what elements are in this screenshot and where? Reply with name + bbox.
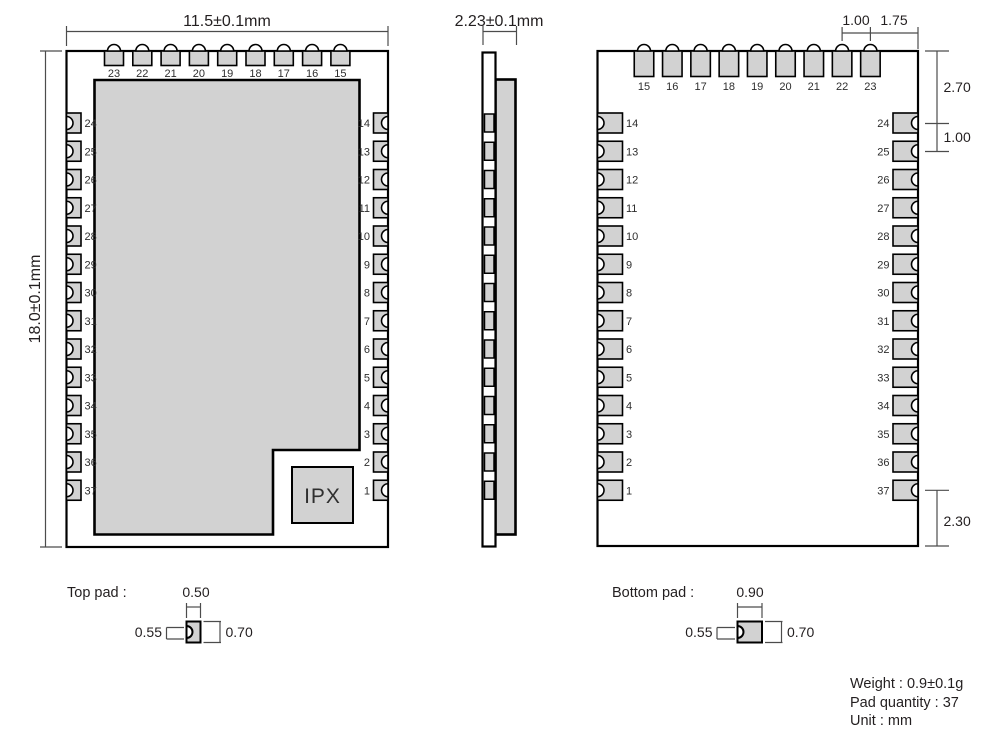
side-pad: [485, 481, 495, 499]
pad-body: [747, 51, 767, 77]
pad-notch: [751, 45, 764, 51]
pad-notch: [598, 314, 605, 327]
pad-notch: [67, 343, 74, 356]
pad-pin-28: 28: [67, 226, 97, 246]
module-dimension-drawing: 11.5±0.1mm 18.0±0.1mm IPX 23222120191817…: [0, 0, 1000, 738]
pad-number: 1: [364, 485, 370, 497]
pad-notch: [382, 399, 388, 412]
pad-notch: [164, 45, 177, 51]
pad-notch: [67, 456, 74, 469]
pad-number: 13: [626, 146, 638, 158]
pad-notch: [598, 173, 605, 186]
pad-pin-10: 10: [358, 226, 388, 246]
pad-pin-1: 1: [364, 480, 388, 500]
pad-number: 37: [85, 485, 97, 497]
pad-number: 1: [626, 485, 632, 497]
pad-notch: [334, 45, 347, 51]
pad-pin-22: 22: [133, 45, 152, 80]
top-pad-detail: Top pad : 0.50 0.55 0.70: [67, 584, 253, 643]
pad-body: [303, 51, 322, 66]
pad-pin-2: 2: [598, 452, 633, 472]
pad-pin-16: 16: [303, 45, 322, 80]
bottom-view-top-dimensions: 1.00 1.75: [842, 12, 918, 49]
pad-notch: [912, 484, 919, 497]
pad-notch: [382, 286, 388, 299]
pad-notch: [67, 145, 74, 158]
bottom-pad-width-label: 0.90: [736, 584, 763, 600]
pad-number: 9: [626, 259, 632, 271]
pad-number: 35: [877, 429, 889, 441]
pad-notch: [108, 45, 121, 51]
mechanical-drawing-page: 11.5±0.1mm 18.0±0.1mm IPX 23222120191817…: [0, 0, 1000, 738]
side-pad: [485, 227, 495, 245]
pad-number: 36: [85, 457, 97, 469]
pad-number: 16: [666, 81, 678, 93]
pad-number: 37: [877, 485, 889, 497]
pad-notch: [67, 371, 74, 384]
top-pad-notch: [187, 626, 193, 638]
pad-number: 28: [877, 231, 889, 243]
pad-number: 12: [358, 175, 370, 187]
pad-number: 10: [626, 231, 638, 243]
pad-pin-28: 28: [877, 226, 918, 246]
top-pin-pitch-label: 1.00: [842, 12, 869, 28]
bottom-view-right-lower-dimension: 2.30: [925, 490, 971, 546]
pad-notch: [67, 427, 74, 440]
pad-number: 34: [85, 401, 97, 413]
pad-pin-8: 8: [598, 283, 633, 303]
pad-notch: [306, 45, 319, 51]
pad-pin-18: 18: [246, 45, 265, 80]
pad-pin-35: 35: [67, 424, 97, 444]
top-view-width-dimension: 11.5±0.1mm: [67, 13, 389, 46]
pad-body: [274, 51, 293, 66]
pad-pin-36: 36: [877, 452, 918, 472]
pad-notch: [864, 45, 877, 51]
pad-notch: [382, 145, 388, 158]
pad-pin-29: 29: [67, 254, 97, 274]
pad-pin-2: 2: [364, 452, 388, 472]
pad-number: 33: [85, 372, 97, 384]
pad-number: 34: [877, 401, 889, 413]
pad-body: [331, 51, 350, 66]
pad-pin-6: 6: [364, 339, 388, 359]
pad-notch: [598, 484, 605, 497]
pad-pin-14: 14: [598, 113, 639, 133]
pad-pin-24: 24: [67, 113, 97, 133]
pad-pin-34: 34: [877, 396, 918, 416]
pad-pin-20: 20: [776, 45, 796, 93]
pad-pin-37: 37: [877, 480, 918, 500]
pad-notch: [912, 258, 919, 271]
pad-notch: [382, 343, 388, 356]
pad-pin-3: 3: [598, 424, 633, 444]
pad-number: 8: [626, 288, 632, 300]
top-pad-detail-label: Top pad :: [67, 585, 127, 601]
pad-number: 3: [364, 429, 370, 441]
pad-notch: [912, 286, 919, 299]
pad-body: [189, 51, 208, 66]
pad-number: 27: [85, 203, 97, 215]
pad-pin-32: 32: [877, 339, 918, 359]
pad-number: 31: [877, 316, 889, 328]
pad-number: 22: [136, 68, 148, 80]
bottom-pad-width-dimension: 0.90: [736, 584, 763, 618]
pad-number: 11: [626, 203, 637, 215]
pad-notch: [277, 45, 290, 51]
side-pad: [485, 425, 495, 443]
pad-number: 32: [85, 344, 97, 356]
pad-pin-23: 23: [861, 45, 881, 93]
bottom-pad-detail-label: Bottom pad :: [612, 585, 694, 601]
bottom-view: 1516171819202122231413121110987654321242…: [598, 12, 971, 546]
pad-pin-1: 1: [598, 480, 633, 500]
pad-pin-17: 17: [691, 45, 711, 93]
pad-notch: [598, 258, 605, 271]
side-pad: [485, 340, 495, 358]
pad-pin-27: 27: [877, 198, 918, 218]
pad-number: 29: [877, 259, 889, 271]
side-view: 2.23±0.1mm: [455, 13, 544, 547]
pad-notch: [598, 201, 605, 214]
pad-notch: [912, 201, 919, 214]
pad-notch: [598, 230, 605, 243]
pad-pin-9: 9: [364, 254, 388, 274]
pad-pin-7: 7: [598, 311, 633, 331]
pad-number: 19: [221, 68, 233, 80]
pad-notch: [598, 343, 605, 356]
bottom-pad-right-height-label: 0.70: [787, 624, 814, 640]
pad-number: 2: [364, 457, 370, 469]
pad-pin-4: 4: [364, 396, 388, 416]
top-pad-width-dimension: 0.50: [182, 584, 209, 618]
pad-notch: [666, 45, 679, 51]
pad-notch: [598, 145, 605, 158]
pad-number: 5: [364, 372, 370, 384]
pad-number: 5: [626, 372, 632, 384]
pad-pin-13: 13: [598, 141, 639, 161]
pad-number: 25: [85, 146, 97, 158]
pad-body: [218, 51, 237, 66]
pad-number: 17: [694, 81, 706, 93]
pad-number: 6: [626, 344, 632, 356]
top-view: 11.5±0.1mm 18.0±0.1mm IPX 23222120191817…: [27, 13, 388, 547]
pad-pin-19: 19: [747, 45, 767, 93]
bottom-view-pads: 1516171819202122231413121110987654321242…: [598, 45, 919, 501]
pad-notch: [598, 427, 605, 440]
pad-number: 33: [877, 372, 889, 384]
pad-pin-3: 3: [364, 424, 388, 444]
pad-number: 26: [877, 175, 889, 187]
pad-notch: [598, 286, 605, 299]
pad-number: 11: [359, 203, 370, 215]
top-pad-right-height-label: 0.70: [226, 624, 253, 640]
pad-pin-24: 24: [877, 113, 918, 133]
pad-notch: [136, 45, 149, 51]
bottom-pad-right-height-dimension: 0.70: [765, 622, 814, 643]
pad-pin-37: 37: [67, 480, 97, 500]
pad-number: 6: [364, 344, 370, 356]
pad-number: 15: [334, 68, 346, 80]
pad-body: [719, 51, 739, 77]
pad-pin-16: 16: [663, 45, 683, 93]
pad-notch: [67, 399, 74, 412]
pad-notch: [598, 399, 605, 412]
pad-number: 2: [626, 457, 632, 469]
side-view-width-label: 2.23±0.1mm: [455, 13, 544, 30]
pad-pin-6: 6: [598, 339, 633, 359]
pad-notch: [912, 314, 919, 327]
pad-pin-30: 30: [877, 283, 918, 303]
pad-number: 23: [864, 81, 876, 93]
pad-body: [246, 51, 265, 66]
pad-pin-34: 34: [67, 396, 97, 416]
pad-body: [804, 51, 824, 77]
pad-body: [133, 51, 152, 66]
pad-number: 4: [364, 401, 370, 413]
pad-number: 23: [108, 68, 120, 80]
top-pad-left-height-label: 0.55: [135, 624, 162, 640]
pad-number: 24: [877, 118, 889, 130]
pad-pin-19: 19: [218, 45, 237, 80]
bottom-view-module-outline: [598, 51, 919, 546]
pad-number: 7: [364, 316, 370, 328]
pad-body: [105, 51, 124, 66]
weight-text: Weight : 0.9±0.1g: [850, 676, 963, 692]
pad-pin-17: 17: [274, 45, 293, 80]
pad-number: 4: [626, 401, 632, 413]
pad-notch: [67, 286, 74, 299]
pad-pin-33: 33: [877, 367, 918, 387]
side-pad: [485, 114, 495, 132]
pad-pin-29: 29: [877, 254, 918, 274]
pad-pin-27: 27: [67, 198, 97, 218]
pad-number: 22: [836, 81, 848, 93]
pad-notch: [598, 371, 605, 384]
pad-number: 18: [723, 81, 735, 93]
bottom-pad-left-height-label: 0.55: [685, 624, 712, 640]
pad-number: 17: [278, 68, 290, 80]
top-pad-width-label: 0.50: [182, 584, 209, 600]
pad-notch: [694, 45, 707, 51]
pad-pin-21: 21: [161, 45, 180, 80]
side-pad: [485, 453, 495, 471]
pad-number: 27: [877, 203, 889, 215]
ipx-label: IPX: [304, 485, 341, 508]
side-pad: [485, 199, 495, 217]
pad-number: 3: [626, 429, 632, 441]
pad-body: [663, 51, 683, 77]
pad-pin-23: 23: [105, 45, 124, 80]
pad-notch: [382, 484, 388, 497]
pad-notch: [912, 456, 919, 469]
pad-pin-33: 33: [67, 367, 97, 387]
side-pad: [485, 255, 495, 273]
pad-notch: [722, 45, 735, 51]
pad-notch: [638, 45, 651, 51]
pad-notch: [382, 314, 388, 327]
pad-body: [776, 51, 796, 77]
bottom-pad-notch: [738, 626, 744, 638]
pad-notch: [382, 456, 388, 469]
pad-pin-14: 14: [358, 113, 388, 133]
side-pad: [485, 142, 495, 160]
pad-number: 21: [164, 68, 176, 80]
side-pad: [485, 312, 495, 330]
last-pin-to-bottom-label: 2.30: [944, 513, 971, 529]
pad-notch: [192, 45, 205, 51]
top-pad-right-height-dimension: 0.70: [204, 622, 253, 643]
pad-number: 28: [85, 231, 97, 243]
pad-pin-26: 26: [877, 170, 918, 190]
pad-number: 10: [358, 231, 370, 243]
pad-notch: [912, 230, 919, 243]
pad-number: 25: [877, 146, 889, 158]
pad-body: [691, 51, 711, 77]
pad-number: 19: [751, 81, 763, 93]
pad-notch: [382, 117, 388, 130]
pad-pin-21: 21: [804, 45, 824, 93]
side-pad: [485, 284, 495, 302]
side-view-width-dimension: 2.23±0.1mm: [455, 13, 544, 45]
pad-notch: [912, 399, 919, 412]
pad-body: [634, 51, 654, 77]
pad-notch: [598, 117, 605, 130]
top-pad-left-height-dimension: 0.55: [135, 624, 184, 640]
pad-number: 32: [877, 344, 889, 356]
pad-notch: [67, 484, 74, 497]
unit-text: Unit : mm: [850, 713, 912, 729]
pad-pin-4: 4: [598, 396, 633, 416]
pad-pin-15: 15: [634, 45, 654, 93]
pad-body: [861, 51, 881, 77]
pad-notch: [912, 343, 919, 356]
pad-body: [161, 51, 180, 66]
pad-pin-11: 11: [598, 198, 638, 218]
pad-number: 13: [358, 146, 370, 158]
pad-notch: [912, 427, 919, 440]
pad-notch: [912, 117, 919, 130]
pad-number: 30: [85, 288, 97, 300]
pad-notch: [382, 201, 388, 214]
pad-notch: [249, 45, 262, 51]
pad-pin-35: 35: [877, 424, 918, 444]
pad-number: 16: [306, 68, 318, 80]
pad-number: 31: [85, 316, 97, 328]
pad-pin-11: 11: [359, 198, 388, 218]
pad-number: 29: [85, 259, 97, 271]
pad-notch: [382, 230, 388, 243]
pad-pin-8: 8: [364, 283, 388, 303]
pad-pin-10: 10: [598, 226, 639, 246]
pad-number: 20: [779, 81, 791, 93]
bottom-pad-detail: Bottom pad : 0.90 0.55 0.70: [612, 584, 814, 643]
pad-notch: [382, 427, 388, 440]
pad-notch: [67, 314, 74, 327]
pad-notch: [912, 173, 919, 186]
pad-notch: [382, 258, 388, 271]
pad-quantity-text: Pad quantity : 37: [850, 695, 959, 711]
pad-number: 9: [364, 259, 370, 271]
info-block: Weight : 0.9±0.1g Pad quantity : 37 Unit…: [850, 676, 963, 729]
pad-pin-31: 31: [877, 311, 918, 331]
top-view-width-label: 11.5±0.1mm: [183, 13, 271, 30]
pad-pin-18: 18: [719, 45, 739, 93]
pad-number: 14: [626, 118, 638, 130]
pad-pin-31: 31: [67, 311, 97, 331]
side-pin-pitch-label: 1.00: [944, 129, 971, 145]
pad-pin-13: 13: [358, 141, 388, 161]
pad-notch: [598, 456, 605, 469]
pad-number: 18: [249, 68, 261, 80]
pad-number: 21: [808, 81, 820, 93]
side-pad: [485, 397, 495, 415]
pad-notch: [67, 230, 74, 243]
pad-body: [832, 51, 852, 77]
side-pad: [485, 368, 495, 386]
pad-notch: [221, 45, 234, 51]
top-view-height-label: 18.0±0.1mm: [27, 255, 44, 344]
pad-notch: [67, 258, 74, 271]
pad-number: 8: [364, 288, 370, 300]
pad-number: 20: [193, 68, 205, 80]
pad-notch: [836, 45, 849, 51]
pad-pin-20: 20: [189, 45, 208, 80]
pad-notch: [912, 145, 919, 158]
pad-pin-32: 32: [67, 339, 97, 359]
side-view-rf-shield: [496, 80, 516, 535]
pad-pin-36: 36: [67, 452, 97, 472]
pad-number: 35: [85, 429, 97, 441]
pad-pin-7: 7: [364, 311, 388, 331]
pad-pin-5: 5: [598, 367, 633, 387]
pad-pin-26: 26: [67, 170, 97, 190]
pad-pin-25: 25: [877, 141, 918, 161]
pad-number: 14: [358, 118, 370, 130]
pad-number: 26: [85, 175, 97, 187]
pad-pin-5: 5: [364, 367, 388, 387]
pad-pin-15: 15: [331, 45, 350, 80]
pad-number: 7: [626, 316, 632, 328]
side-pad: [485, 171, 495, 189]
pad-notch: [67, 173, 74, 186]
pad-notch: [382, 173, 388, 186]
pad-number: 36: [877, 457, 889, 469]
bottom-view-right-upper-dimensions: 2.70 1.00: [925, 51, 971, 152]
pad-pin-25: 25: [67, 141, 97, 161]
pad-pin-9: 9: [598, 254, 633, 274]
pad-notch: [67, 201, 74, 214]
pad-number: 24: [85, 118, 97, 130]
pad-pin-12: 12: [358, 170, 388, 190]
pad-pin-30: 30: [67, 283, 97, 303]
pad-pin-12: 12: [598, 170, 639, 190]
pad-notch: [779, 45, 792, 51]
pad-notch: [912, 371, 919, 384]
top-edge-to-first-pin-label: 2.70: [944, 79, 971, 95]
pad-number: 15: [638, 81, 650, 93]
top-view-height-dimension: 18.0±0.1mm: [27, 51, 62, 547]
pad-pin-22: 22: [832, 45, 852, 93]
pad-notch: [807, 45, 820, 51]
pad-number: 30: [877, 288, 889, 300]
bottom-pad-left-height-dimension: 0.55: [685, 624, 735, 640]
pad-number: 12: [626, 175, 638, 187]
pad-notch: [67, 117, 74, 130]
pad-notch: [382, 371, 388, 384]
pin-to-edge-label: 1.75: [880, 12, 907, 28]
